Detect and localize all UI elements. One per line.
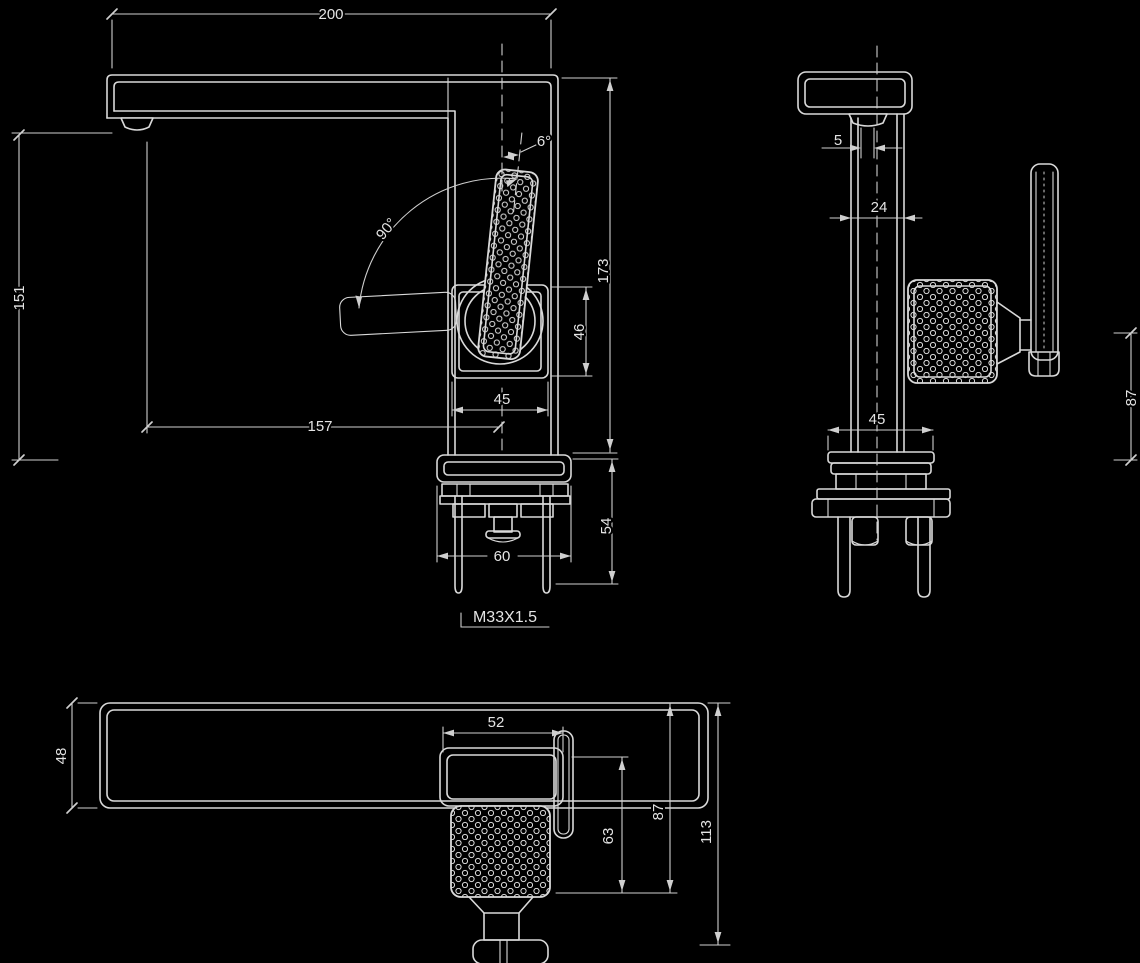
- dim-side-handle-height: 87: [1123, 390, 1140, 407]
- dim-side-base-depth: 45: [869, 411, 886, 428]
- dim-front-swivel-angle: 90°: [373, 215, 401, 243]
- dim-front-base-width: 60: [494, 548, 511, 565]
- dim-front-cartridge-height: 46: [571, 324, 588, 341]
- dim-front-spout-height: 151: [11, 285, 28, 310]
- dim-plan-handle-reach: 87: [650, 804, 667, 821]
- dim-front-overall-width: 200: [318, 6, 343, 23]
- front-view: 200 151 157 90° 6° 173 46 45 54 60 M33X1…: [11, 6, 618, 627]
- dim-side-aerator-offset: 5: [834, 132, 842, 149]
- drawing-canvas: 200 151 157 90° 6° 173 46 45 54 60 M33X1…: [0, 0, 1140, 963]
- label-front-thread: M33X1.5: [473, 609, 537, 626]
- front-handle-lever: [477, 131, 542, 360]
- dim-plan-plate-width: 52: [488, 714, 505, 731]
- faucet-technical-drawing: 200 151 157 90° 6° 173 46 45 54 60 M33X1…: [0, 0, 1140, 963]
- dim-front-total-height: 173: [595, 258, 612, 283]
- plan-view: 48 52 63 87 113: [53, 698, 730, 963]
- dim-front-spout-reach: 157: [307, 418, 332, 435]
- dim-plan-overall-depth: 113: [698, 820, 715, 844]
- dim-plan-spout-width: 48: [53, 748, 70, 765]
- front-dimensions: [12, 9, 618, 627]
- side-body-outline: [798, 72, 1059, 597]
- side-view: 5 24 45 87: [798, 46, 1140, 597]
- dim-plan-handle-depth: 63: [600, 828, 617, 845]
- dim-front-underdeck-height: 54: [598, 518, 615, 535]
- dim-side-body-depth: 24: [871, 199, 888, 216]
- plan-dimensions: [67, 698, 730, 945]
- dim-front-cartridge-width: 45: [494, 391, 511, 408]
- dim-front-lever-angle: 6°: [537, 133, 551, 150]
